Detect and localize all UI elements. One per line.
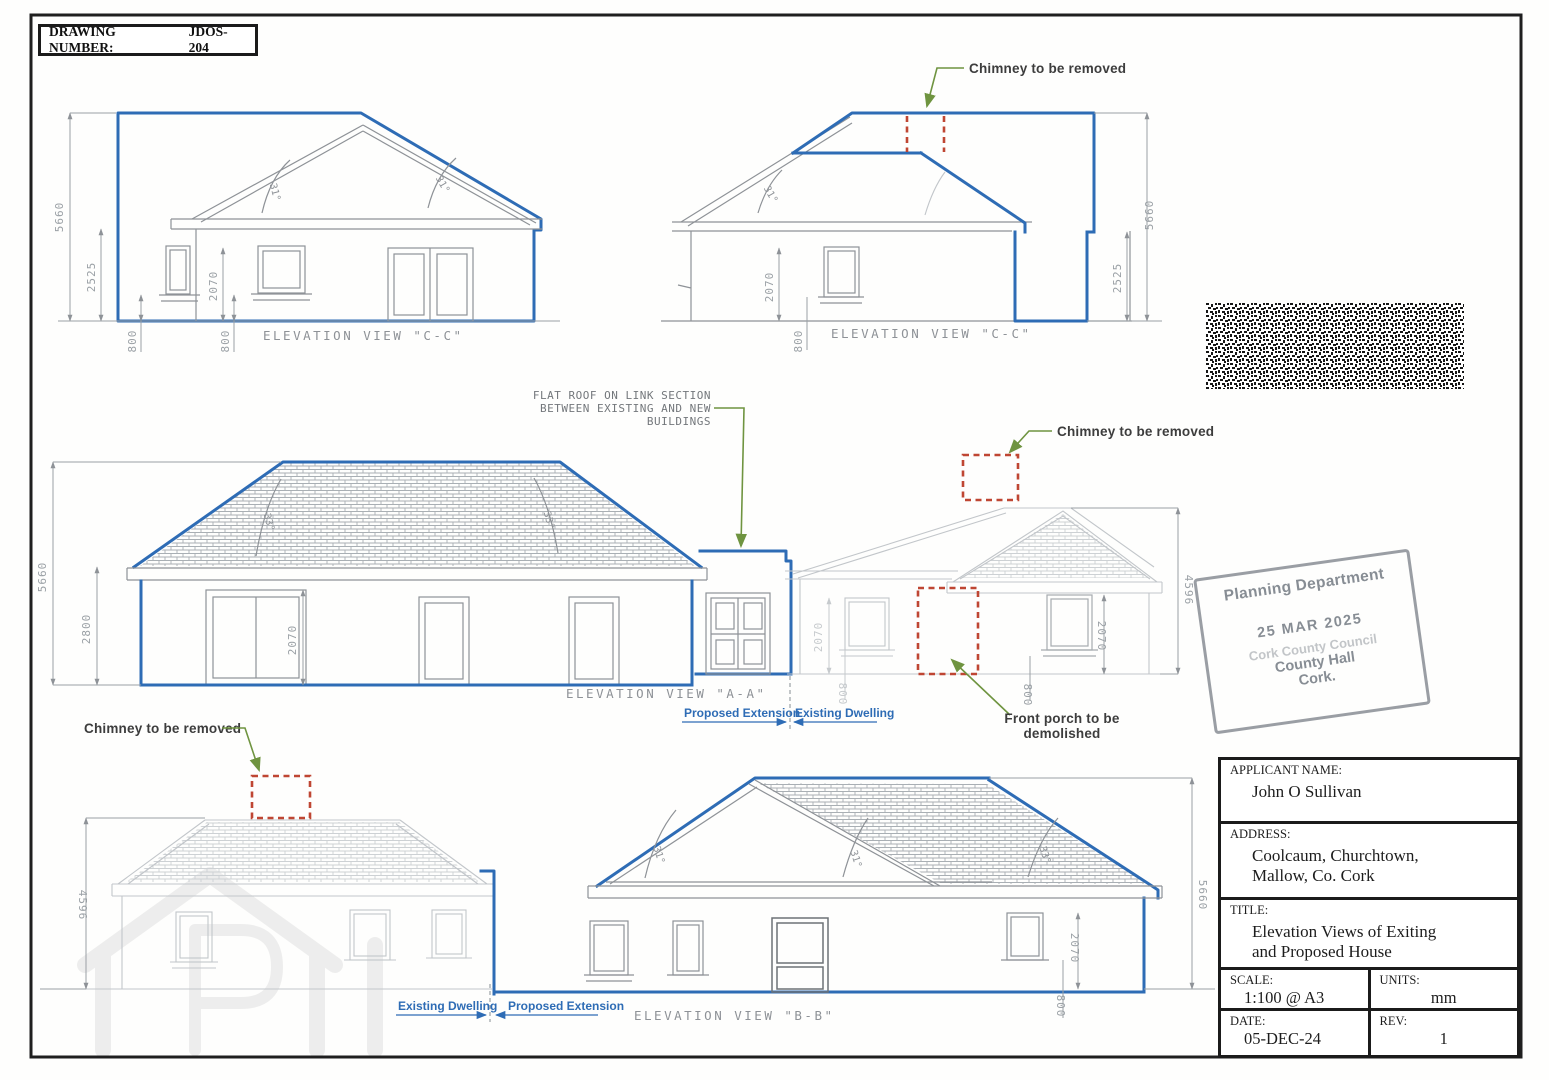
aa-link-french-doors xyxy=(706,593,770,674)
date-label: DATE: xyxy=(1230,1014,1359,1029)
dim-800: 800 xyxy=(126,330,139,353)
view-label-aa: ELEVATION VIEW "A-A" xyxy=(566,686,767,701)
dim-2070: 2070 xyxy=(286,625,299,656)
title-block: APPLICANT NAME: John O Sullivan ADDRESS:… xyxy=(1218,757,1520,1058)
aa-extension-boundary: Proposed Extension Existing Dwelling xyxy=(682,676,894,732)
dim-800: 800 xyxy=(219,330,232,353)
dim-5660: 5660 xyxy=(53,202,66,233)
front-porch-outline-dashed xyxy=(918,588,978,674)
annotation-porch-line1: Front porch to be xyxy=(1004,711,1119,726)
proposed-extension-label: Proposed Extension xyxy=(508,999,624,1013)
cc-right-blue-outline xyxy=(793,113,1094,321)
dim-800: 800 xyxy=(1021,684,1034,707)
address-line2: Mallow, Co. Cork xyxy=(1252,866,1508,886)
chimney-outline-dashed xyxy=(252,776,310,818)
view-label-cc-left: ELEVATION VIEW "C-C" xyxy=(263,328,464,343)
elevation-cc-right: 31° Chimney to be removed 2070 800 xyxy=(661,61,1162,352)
address-label: ADDRESS: xyxy=(1230,827,1508,842)
dim-800: 800 xyxy=(1054,995,1067,1018)
porch-leader-arrow xyxy=(952,660,1010,715)
flat-roof-leader-arrow xyxy=(714,408,744,546)
view-label-cc-right: ELEVATION VIEW "C-C" xyxy=(831,326,1032,341)
drawing-number-value: JDOS-204 xyxy=(189,24,247,56)
elevation-aa: 33° 33° 5660 2800 2070 ELEVATION VIEW "A… xyxy=(36,462,894,732)
planning-stamp: Planning Department 25 MAR 2025 Cork Cou… xyxy=(1193,549,1431,735)
title-line1: Elevation Views of Exiting xyxy=(1252,922,1508,942)
scale-label: SCALE: xyxy=(1230,973,1359,988)
applicant-value: John O Sullivan xyxy=(1252,782,1508,802)
title-label: TITLE: xyxy=(1230,903,1508,918)
existing-dwelling-label: Existing Dwelling xyxy=(398,999,497,1013)
address-line1: Coolcaum, Churchtown, xyxy=(1252,846,1508,866)
chimney-outline-dashed xyxy=(907,116,944,152)
drawing-sheet: 31° 31° 5660 2525 2070 800 800 ELEVATION… xyxy=(0,0,1549,1080)
rev-value: 1 xyxy=(1380,1029,1509,1049)
bb-existing-roof-tiles xyxy=(126,822,480,882)
flat-roof-line1: FLAT ROOF ON LINK SECTION xyxy=(533,389,711,402)
title-block-title: TITLE: Elevation Views of Exiting and Pr… xyxy=(1221,900,1517,970)
rev-label: REV: xyxy=(1380,1014,1509,1029)
bb-extension-boundary: Existing Dwelling Proposed Extension xyxy=(396,984,624,1022)
barcode: 234083-25/02/2025-F2 Elevations xyxy=(1206,303,1464,389)
dim-4596: 4596 xyxy=(76,890,89,921)
angle-label: 31° xyxy=(847,849,863,870)
elevation-bb: Chimney to be removed 4596 xyxy=(40,721,1215,1023)
annotation-chimney-bottom: Chimney to be removed xyxy=(84,721,241,736)
barcode-2d-pattern xyxy=(1229,303,1410,365)
dim-2800: 2800 xyxy=(80,614,93,645)
chimney-leader-arrow xyxy=(1010,431,1052,452)
title-block-applicant: APPLICANT NAME: John O Sullivan xyxy=(1221,760,1517,824)
dim-5660: 5660 xyxy=(1196,880,1209,911)
dim-2070: 2070 xyxy=(207,271,220,302)
dim-2070: 2070 xyxy=(1095,621,1108,652)
drawing-number-box: DRAWING NUMBER: JDOS-204 xyxy=(38,24,258,56)
units-value: mm xyxy=(1380,988,1509,1008)
barcode-graphic xyxy=(1206,303,1464,365)
annotation-chimney-top: Chimney to be removed xyxy=(969,61,1126,76)
chimney-leader-arrow xyxy=(927,68,964,106)
dim-2070: 2070 xyxy=(763,272,776,303)
existing-dwelling-label: Existing Dwelling xyxy=(795,706,894,720)
dim-2070: 2070 xyxy=(812,622,825,653)
dim-800: 800 xyxy=(836,683,849,706)
title-block-date-rev: DATE: 05-DEC-24 REV: 1 xyxy=(1221,1011,1517,1055)
flat-roof-line3: BUILDINGS xyxy=(647,415,711,428)
units-label: UNITS: xyxy=(1380,973,1509,988)
view-label-bb: ELEVATION VIEW "B-B" xyxy=(634,1008,835,1023)
dim-2525: 2525 xyxy=(1111,263,1124,294)
annotation-porch-line2: demolished xyxy=(1023,726,1100,741)
annotation-chimney-mid: Chimney to be removed xyxy=(1057,424,1214,439)
chimney-outline-dashed xyxy=(963,455,1018,500)
dim-5660: 5660 xyxy=(36,562,49,593)
proposed-extension-label: Proposed Extension xyxy=(684,706,800,720)
title-block-scale-units: SCALE: 1:100 @ A3 UNITS: mm xyxy=(1221,970,1517,1011)
scale-value: 1:100 @ A3 xyxy=(1244,988,1359,1008)
applicant-label: APPLICANT NAME: xyxy=(1230,763,1508,778)
existing-dwelling-middle: Chimney to be removed Front porch to be … xyxy=(785,424,1214,741)
angle-label: 31° xyxy=(267,182,282,202)
dim-4596: 4596 xyxy=(1182,575,1195,606)
dim-5660: 5660 xyxy=(1143,200,1156,231)
angle-label: 31° xyxy=(761,184,780,205)
dim-2070: 2070 xyxy=(1068,933,1081,964)
title-line2: and Proposed House xyxy=(1252,942,1508,962)
cc-right-dimensions: 2070 800 5660 2525 xyxy=(763,113,1162,352)
existing-dimensions: 2070 800 2070 800 4596 xyxy=(812,508,1195,706)
date-value: 05-DEC-24 xyxy=(1244,1029,1359,1049)
cc-left-dimensions: 5660 2525 2070 800 800 xyxy=(53,113,560,352)
flat-roof-line2: BETWEEN EXISTING AND NEW xyxy=(540,402,711,415)
bb-proposed-roof-tiles xyxy=(758,783,1148,884)
bb-door xyxy=(772,918,828,992)
elevation-cc-left: 31° 31° 5660 2525 2070 800 800 ELEVATION… xyxy=(53,113,560,352)
gable-tiles xyxy=(963,514,1150,578)
aa-roof-tiles xyxy=(140,463,695,566)
title-block-address: ADDRESS: Coolcaum, Churchtown, Mallow, C… xyxy=(1221,824,1517,900)
drawing-number-label: DRAWING NUMBER: xyxy=(49,24,182,56)
dim-2525: 2525 xyxy=(85,262,98,293)
dim-800: 800 xyxy=(792,330,805,353)
